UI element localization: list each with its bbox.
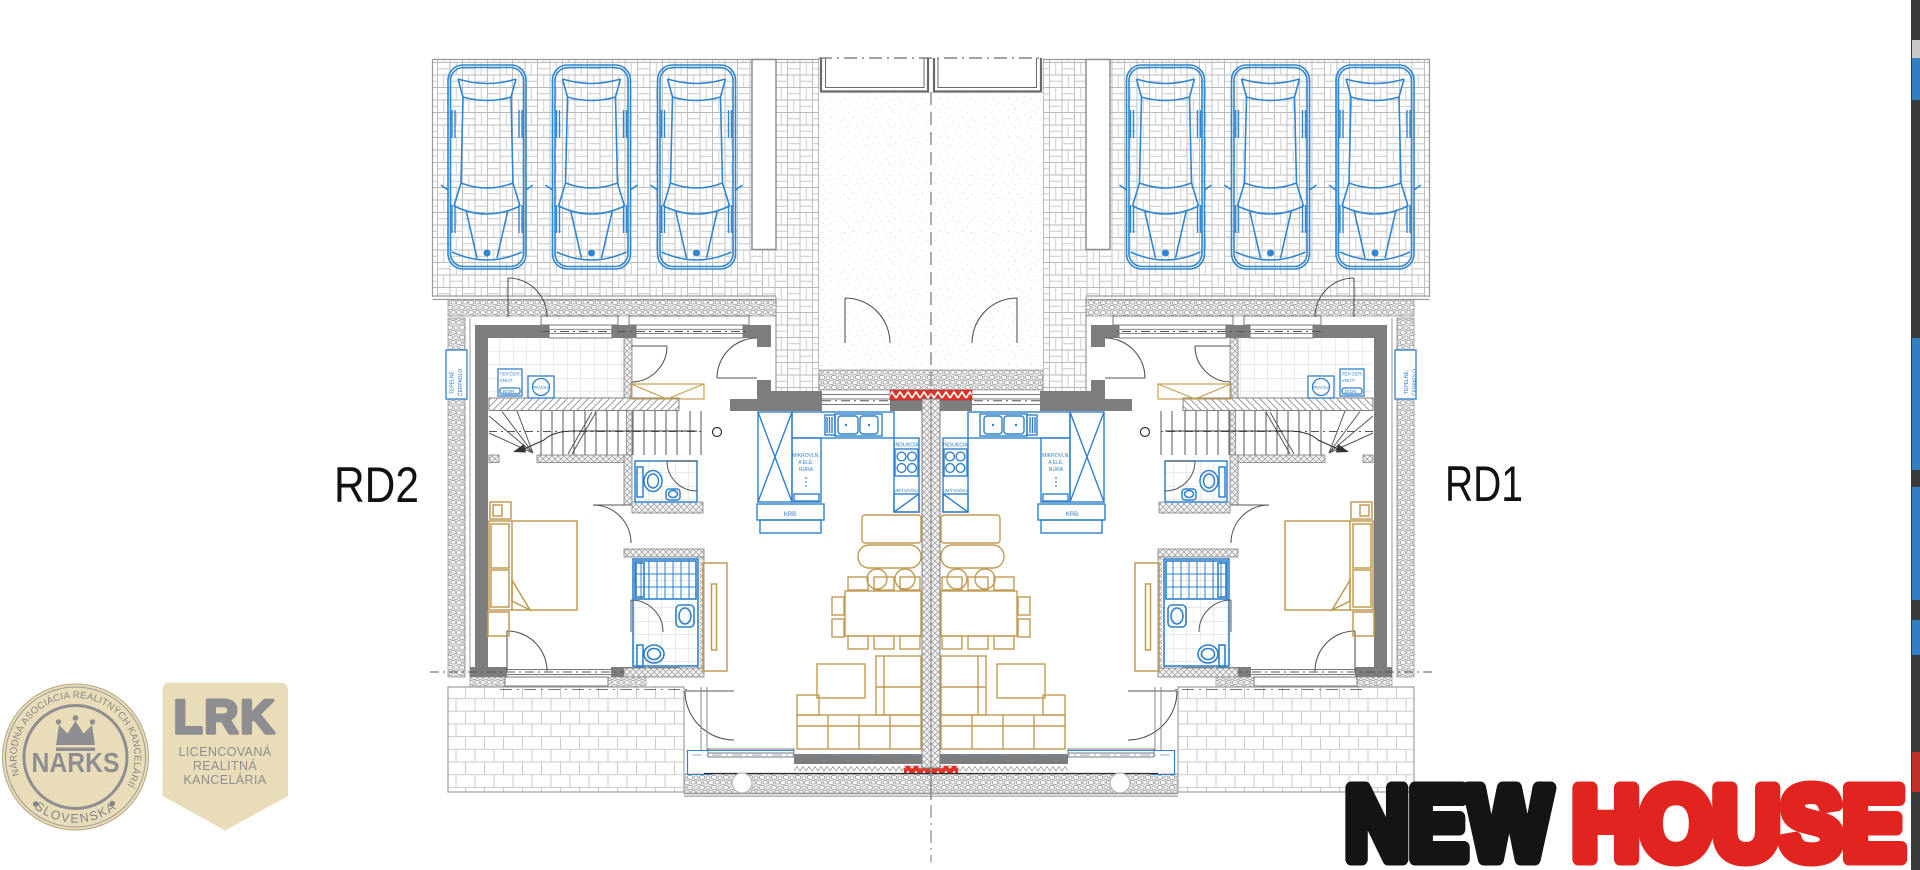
- svg-text:PRÁČKA: PRÁČKA: [532, 385, 549, 390]
- svg-text:LICENCOVANÁ: LICENCOVANÁ: [178, 744, 271, 759]
- svg-text:HOUSE: HOUSE: [1572, 766, 1905, 870]
- svg-text:A ELE.: A ELE.: [798, 460, 813, 466]
- svg-text:RD1: RD1: [1445, 456, 1523, 512]
- svg-text:KRB: KRB: [1066, 512, 1078, 518]
- svg-text:A ELE.: A ELE.: [1048, 460, 1063, 466]
- svg-text:TEPELNÉ: TEPELNÉ: [449, 371, 456, 394]
- svg-text:ČERPADLO: ČERPADLO: [457, 369, 464, 396]
- svg-text:JEDN.: JEDN.: [502, 389, 516, 395]
- svg-text:KANCELÁRIA: KANCELÁRIA: [183, 772, 266, 787]
- svg-text:NARKS: NARKS: [32, 747, 120, 778]
- svg-text:INDUKCIA: INDUKCIA: [943, 443, 968, 449]
- svg-text:RÚRA: RÚRA: [1049, 466, 1064, 473]
- svg-text:ČERPADLO: ČERPADLO: [1412, 369, 1419, 396]
- svg-text:REALITNÁ: REALITNÁ: [193, 758, 258, 773]
- svg-text:TEPELNÉ: TEPELNÉ: [1403, 371, 1410, 394]
- svg-text:RD2: RD2: [334, 457, 419, 513]
- svg-text:MIKROVLN.: MIKROVLN.: [792, 453, 820, 459]
- svg-text:KRB: KRB: [784, 512, 796, 518]
- svg-text:RÚRA: RÚRA: [799, 466, 814, 473]
- svg-text:INDUKCIA: INDUKCIA: [894, 443, 919, 449]
- svg-text:LRK: LRK: [174, 690, 277, 743]
- svg-text:MIKROVLN.: MIKROVLN.: [1042, 453, 1070, 459]
- svg-text:JEDN.: JEDN.: [1344, 389, 1358, 395]
- svg-text:NEW: NEW: [1345, 766, 1552, 870]
- svg-text:PRÁČKA: PRÁČKA: [1312, 385, 1329, 390]
